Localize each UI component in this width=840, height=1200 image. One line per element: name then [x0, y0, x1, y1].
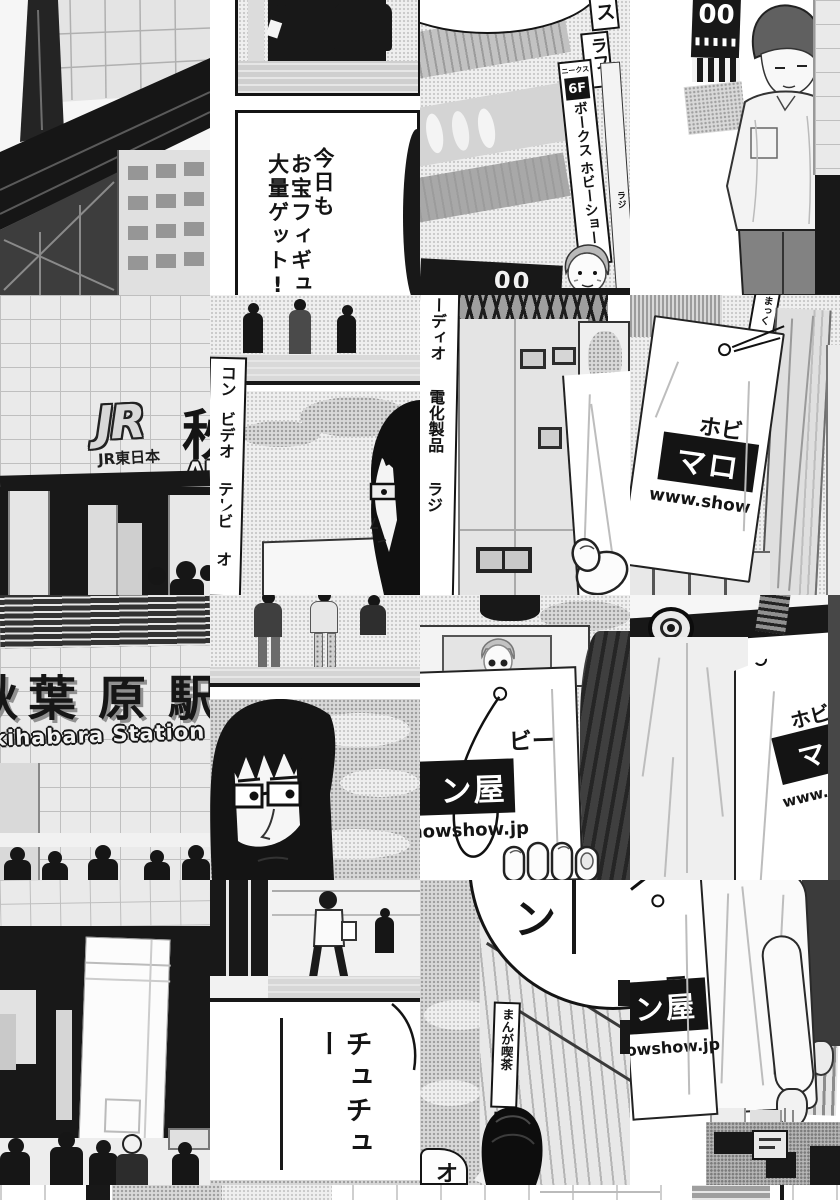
- small-bright-sign: [752, 1130, 788, 1160]
- window-pair: [476, 547, 532, 573]
- cloud: [240, 421, 320, 447]
- silhouette-shoulders: [170, 579, 204, 595]
- elec-right-l1: ーディオ: [428, 297, 447, 361]
- hand-shape: オ: [420, 1148, 468, 1185]
- trouser-crease: [664, 757, 674, 877]
- pedestrian-body: [289, 310, 311, 354]
- capped-head-outline: [122, 1134, 142, 1154]
- roof-lattice: [458, 295, 608, 321]
- tile-r2c4-bag-and-leg: まっく ホビ マロ www.show: [630, 295, 840, 595]
- tile-r3c4-belt-bag: ホビ マ www.s: [630, 595, 840, 880]
- trouser-crease: [642, 657, 660, 776]
- manga-page: 今日も お宝フィギュア 大量ゲット!! ス ラフ ニークス 6F ボークス ホビ…: [0, 0, 840, 1200]
- tile-r1c1-station-canopy: [0, 0, 210, 295]
- station-kanji-cut: 秋: [0, 659, 18, 729]
- shopping-bag: ホビ マロ www.show: [630, 315, 785, 583]
- shirt-fold: [721, 893, 729, 1083]
- silhouette-body: [88, 859, 118, 880]
- elec-right-l2: 電化製品: [426, 389, 445, 453]
- pedestrian-leg: [258, 637, 267, 671]
- tile-r2c2-billboard-profile: コン ビデオ テレビ オ: [210, 295, 420, 595]
- black-bar: [815, 175, 840, 295]
- crosswalk-ground: [268, 976, 420, 1000]
- station-kanji: 葉原駅: [28, 659, 210, 729]
- tile-r2c3-electronics-street: ーディオ 電化製品 ラジ: [420, 295, 630, 595]
- elec-left-l2: ビデオ: [216, 411, 235, 459]
- jr-logo: JR: [95, 394, 144, 450]
- window-frame: [248, 880, 251, 976]
- electronics-sign-left: コン ビデオ テレビ オ: [210, 357, 247, 595]
- panel-border: [210, 998, 420, 1002]
- volks-small-text: ニークス: [561, 64, 590, 77]
- silhouette-body: [116, 1154, 148, 1185]
- makku-sign-text: まっく: [756, 295, 772, 326]
- bag-logo-box: ン屋: [420, 758, 515, 816]
- building-wall-sliver: [815, 0, 840, 175]
- bubble-divider-line: [280, 1018, 283, 1170]
- pedestrian-body: [337, 315, 356, 353]
- silhouette-head: [200, 565, 210, 581]
- bag-rope: [630, 880, 654, 890]
- pedestrian-body: [375, 917, 394, 953]
- pedestrian-torso: [360, 605, 386, 635]
- strip-figure-fragment: [86, 1185, 110, 1200]
- man-head-back-art: [472, 1092, 552, 1185]
- pedestrian-torso: [254, 603, 282, 637]
- crowd-strip: [210, 595, 420, 685]
- speech-bubble-overlap: [420, 0, 605, 34]
- entrance-pillar: [8, 491, 50, 595]
- tile-r4c3-cafe-sign: ン まんが喫茶 オ: [420, 880, 630, 1185]
- elec-right-l3: ラジ: [425, 481, 443, 513]
- side-sign-chars: ラジ: [614, 191, 625, 210]
- bubble-line-3: 大量ゲット!!: [266, 153, 289, 295]
- street-panel: [210, 880, 420, 1000]
- bag-brand-text: ビー: [508, 721, 555, 757]
- bag-crease: [655, 361, 679, 417]
- board-line: [85, 978, 170, 983]
- strip-halftone-block: [222, 1185, 332, 1200]
- bag-url-text: owshow.jp: [630, 1034, 721, 1060]
- tile-r3c1-station-sign: 秋 葉原駅 kihabara Station: [0, 595, 210, 880]
- sign-text-dash: [759, 1138, 781, 1141]
- bubble-line-2: お宝フィギュア: [289, 153, 312, 295]
- partial-o-char: オ: [436, 1156, 458, 1185]
- profile-woman-art: [360, 400, 420, 595]
- manga-cafe-text: まんが喫茶: [498, 1008, 514, 1071]
- edge-dark-mark: [620, 1020, 630, 1054]
- board-line: [86, 962, 171, 967]
- dark-shop-windows: [210, 880, 268, 976]
- edge-dark-mark: [618, 980, 630, 1006]
- volks-name: ボークス: [571, 101, 592, 158]
- buckle-center: [667, 624, 675, 632]
- window-mullion: [502, 551, 505, 571]
- strip-dark-line: [780, 1185, 784, 1200]
- pedestrian-silhouette: [334, 3, 392, 51]
- second-leg-sliver: [826, 345, 840, 595]
- window: [552, 347, 576, 365]
- station-canopy-art: [0, 0, 210, 295]
- silhouette-body: [50, 1147, 83, 1185]
- volks-floor-badge: 6F: [564, 76, 590, 100]
- strip-line: [540, 1191, 660, 1193]
- speech-bubble-panel: 今日も お宝フィギュア 大量ゲット!!: [235, 110, 420, 295]
- bubble-line-1: 今日も: [311, 147, 334, 295]
- silhouette-body: [89, 1153, 118, 1185]
- board-line: [143, 940, 152, 1150]
- silhouette-head: [148, 567, 166, 585]
- tile-r1c4-standing-man: 00: [630, 0, 840, 295]
- trouser-seam: [686, 643, 688, 873]
- silhouette-body: [4, 860, 31, 880]
- white-notch: [210, 495, 228, 519]
- partial-sign-su: ス: [588, 0, 620, 31]
- street-clutter: [706, 1122, 840, 1185]
- elec-left-l1: コン: [218, 365, 236, 397]
- electronics-sign-right: ーディオ 電化製品 ラジ: [420, 295, 460, 595]
- hair-sliver: [403, 129, 420, 295]
- silhouette-body: [144, 862, 170, 880]
- entrance-pillar: [88, 505, 118, 595]
- strip-halftone-block: [112, 1185, 222, 1200]
- thumb-hand-art: [568, 533, 630, 595]
- gripping-fingers-art: [502, 837, 602, 880]
- silhouette-body: [172, 1154, 199, 1185]
- hair-top-fragment: [480, 595, 540, 621]
- silhouette-body: [42, 863, 68, 880]
- bag-crease: [759, 691, 774, 880]
- silhouette-head: [176, 561, 196, 581]
- pedestrian-torso: [310, 601, 338, 633]
- entrance-block: [118, 523, 142, 595]
- bubble-edge-curve: [390, 1002, 420, 1072]
- display-figure: [449, 110, 472, 152]
- shirt-fold: [741, 886, 763, 1085]
- ceiling-band: [0, 880, 210, 930]
- tile-r4c1-concourse: [0, 880, 210, 1185]
- rope-weave-strip: [755, 595, 791, 635]
- tile-r3c2-face-closeup: [210, 595, 420, 880]
- display-figure: [423, 112, 446, 154]
- window: [538, 427, 562, 449]
- storefront-panel: [235, 0, 420, 96]
- speech-bubble-text: 今日も お宝フィギュア 大量ゲット!!: [266, 147, 334, 295]
- panel-border: [210, 683, 420, 687]
- silhouette-body: [0, 1152, 30, 1185]
- clutter-dark-box: [714, 1132, 754, 1154]
- trouser-crease: [706, 667, 723, 816]
- pillar: [56, 1010, 72, 1120]
- chu-bubble-text: チュチュー: [312, 1030, 370, 1185]
- sign-char: ス: [595, 0, 617, 26]
- bottom-ink-edge: [420, 288, 630, 295]
- sign-text-dash: [759, 1146, 775, 1149]
- tile-r4c2-chu-bubble: チュチュー: [210, 880, 420, 1185]
- bag-grommet: [717, 342, 732, 357]
- shopping-bag: ホビ マ www.s: [734, 631, 840, 880]
- window-frame: [226, 880, 229, 976]
- elec-left-l4: オ: [214, 551, 232, 567]
- awning-band-dark: [420, 152, 571, 223]
- jr-company: JR東日本: [97, 445, 160, 469]
- bag-logo-box: ン屋: [630, 977, 708, 1035]
- dark-jacket-sliver: [828, 595, 840, 880]
- cloud: [340, 769, 420, 797]
- volks-event: ホビーショー: [577, 160, 601, 245]
- window: [520, 349, 546, 369]
- pedestrian-body: [243, 313, 263, 353]
- tile-r3c3-bag-hand: ビー ン屋 howshow.jp: [420, 595, 630, 880]
- strip-ladder-lines: [692, 1185, 770, 1200]
- tile-r1c2-speech-bubble: 今日も お宝フィギュア 大量ゲット!!: [210, 0, 420, 295]
- sidewalk: [238, 61, 418, 93]
- bag-grommet: [651, 894, 665, 908]
- black-corner: [810, 1146, 840, 1185]
- silhouette-body: [182, 859, 210, 880]
- display-figure: [475, 107, 498, 149]
- bubble-n-char: ン: [514, 886, 556, 947]
- cloud: [420, 1080, 480, 1106]
- tile-r4c4-man-back: ー ン屋 owshow.jp: [630, 880, 840, 1185]
- white-signboard: [78, 937, 170, 1150]
- bottom-partial-strip: [0, 1185, 840, 1200]
- store-door-strip: [248, 0, 264, 61]
- side-panel: [0, 1014, 16, 1070]
- board-inset: [104, 1098, 141, 1133]
- louver-band: [0, 595, 210, 649]
- woman-face-closeup-art: [210, 699, 342, 880]
- bag-grommet: [754, 653, 767, 666]
- bubble-long-dash: [572, 880, 576, 954]
- tile-r2c1-jr-facade: JR JR東日本 秋 Ak: [0, 295, 210, 595]
- tile-r1c3-shop-signs: ス ラフ ニークス 6F ボークス ホビーショー ラジ 00: [420, 0, 630, 295]
- trousers: [630, 637, 748, 880]
